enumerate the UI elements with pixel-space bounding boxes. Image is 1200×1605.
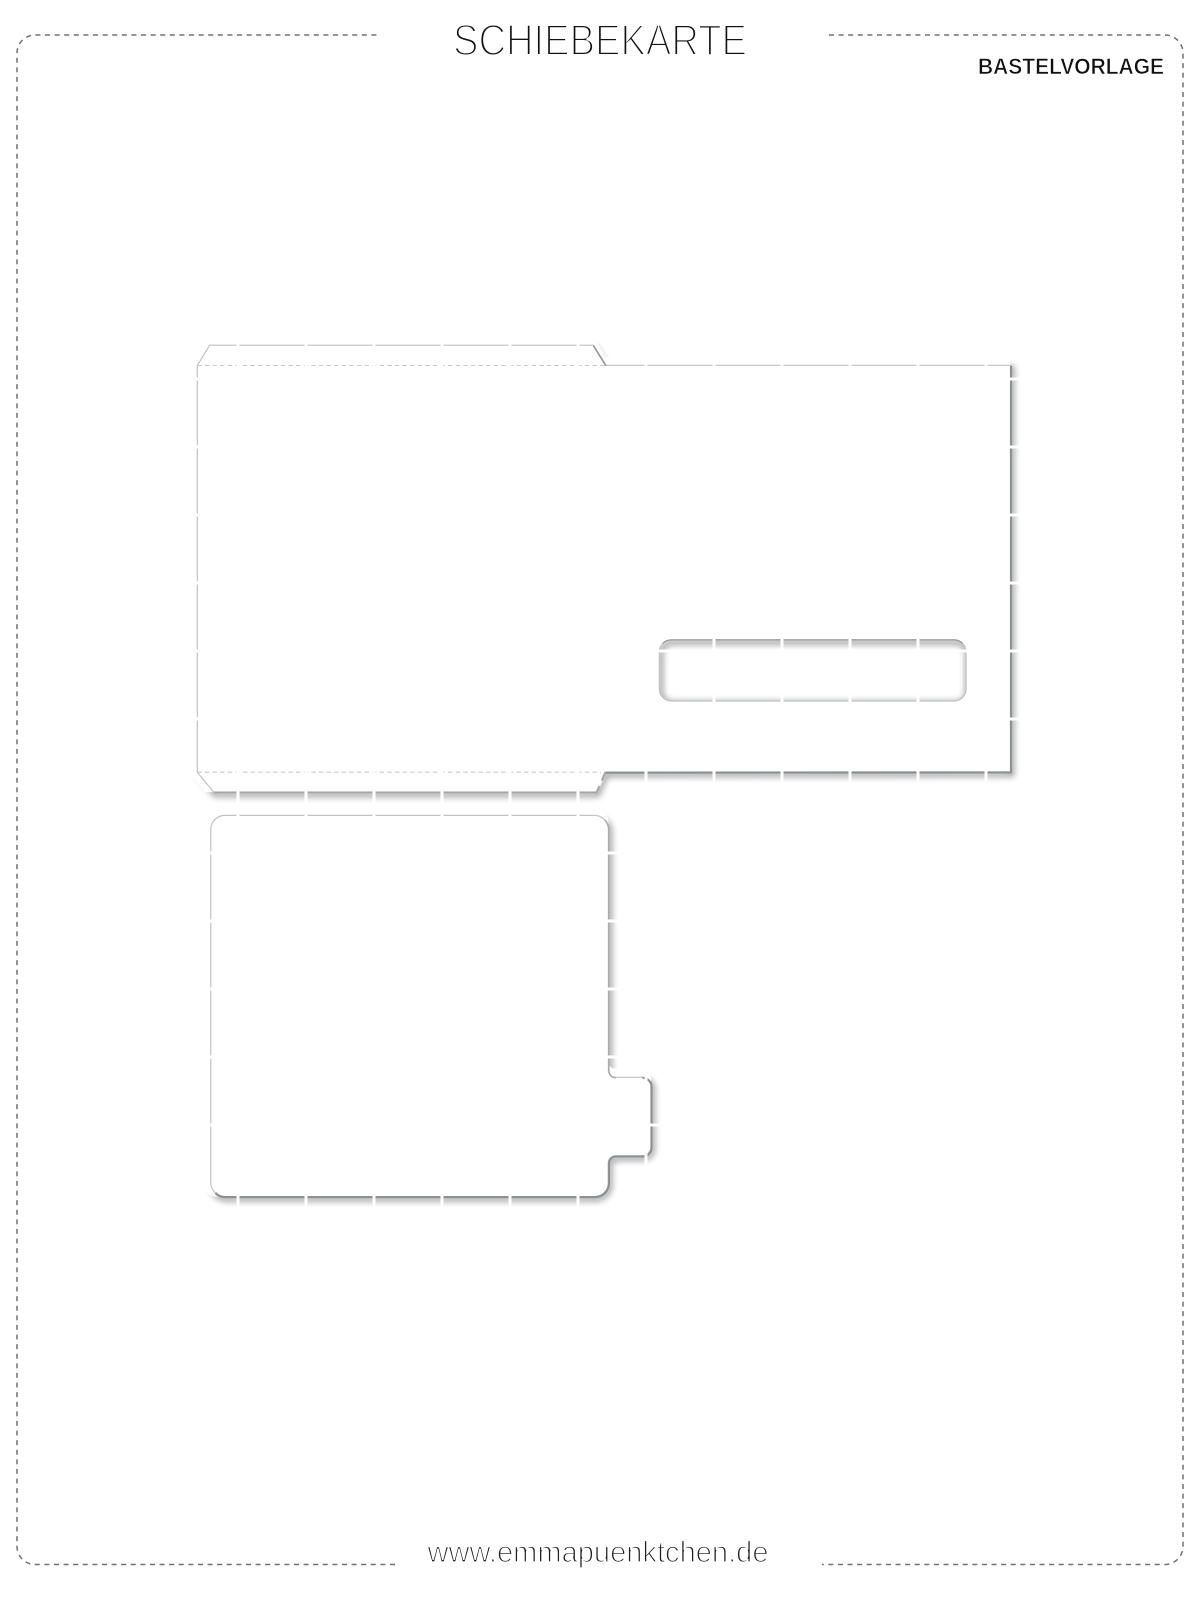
svg-text:www.emmapuenktchen.de: www.emmapuenktchen.de — [427, 1536, 769, 1569]
svg-text:SCHIEBEKARTE: SCHIEBEKARTE — [453, 17, 747, 65]
svg-text:BASTELVORLAGE: BASTELVORLAGE — [978, 54, 1164, 79]
